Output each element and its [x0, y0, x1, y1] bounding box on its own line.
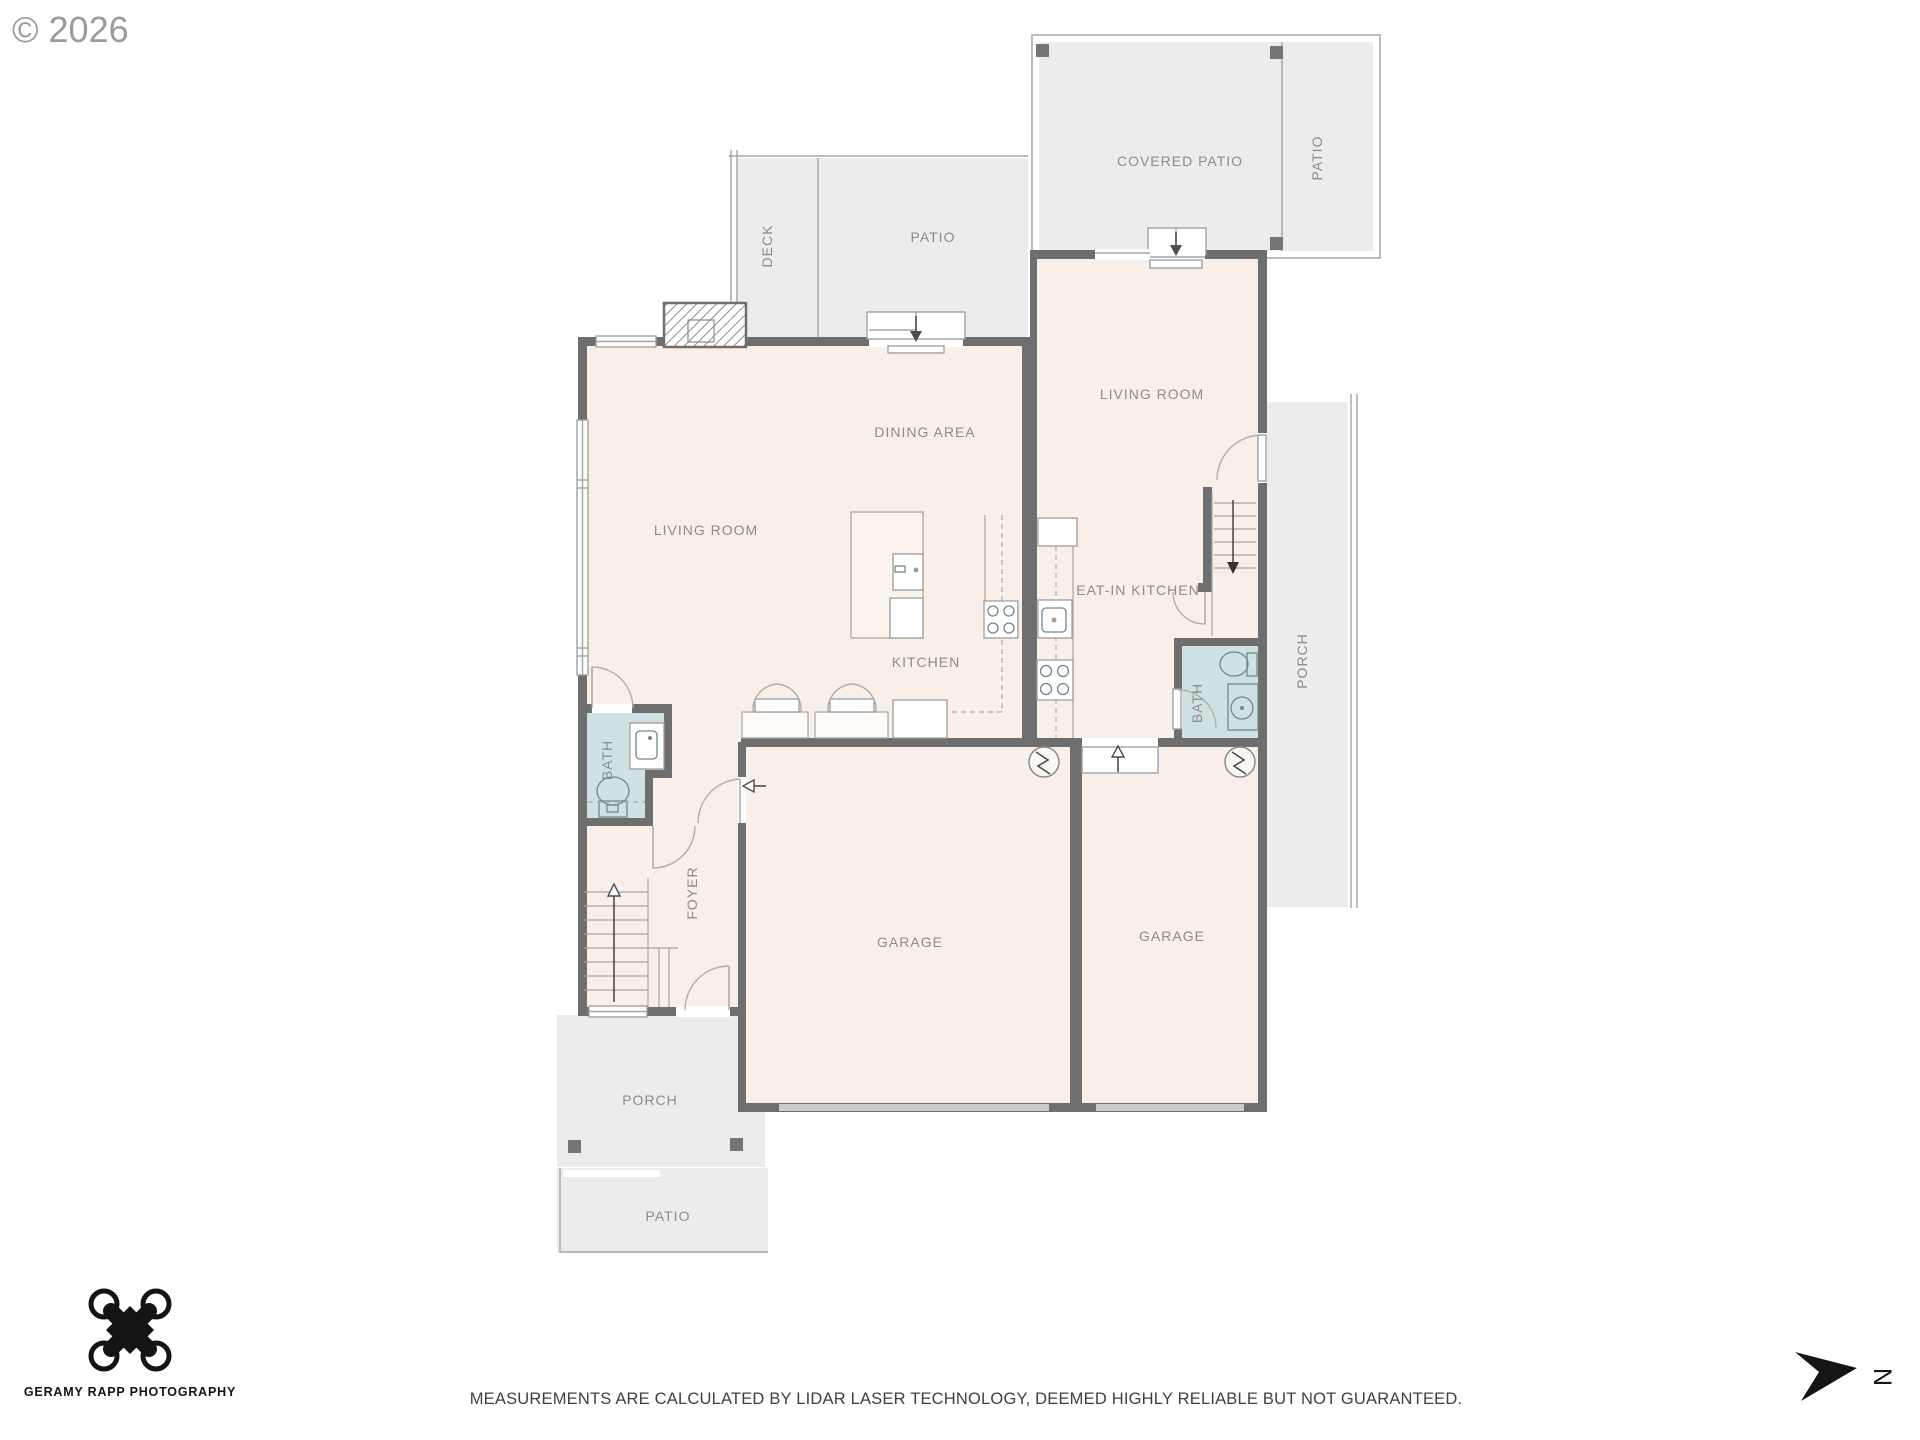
floor-plan-canvas: COVERED PATIO PATIO DECK PATIO DINING AR… [0, 0, 1920, 1440]
garage-door [779, 1104, 1049, 1111]
garage-doors [779, 1104, 1244, 1111]
window [577, 420, 588, 675]
photographer-logo [91, 1291, 169, 1369]
stove [1037, 660, 1073, 700]
garage-door [1096, 1104, 1244, 1111]
room-label-bath-left: BATH [599, 740, 615, 780]
room-label-patio-upper-right: PATIO [1309, 136, 1325, 181]
patio-post [1270, 46, 1283, 59]
room-label-kitchen: KITCHEN [892, 654, 960, 670]
north-arrow-icon [1795, 1352, 1857, 1401]
patio-front-step [563, 1170, 660, 1177]
patio-post [1036, 44, 1049, 57]
room-label-patio-upper: PATIO [911, 229, 956, 245]
stove [984, 601, 1018, 638]
room-label-eat-in-kitchen: EAT-IN KITCHEN [1076, 582, 1199, 598]
porch-post [730, 1138, 743, 1151]
porch-post [568, 1140, 581, 1153]
copyright-watermark: © 2026 [12, 9, 129, 50]
fireplace [664, 303, 746, 347]
disclaimer-text: MEASUREMENTS ARE CALCULATED BY LIDAR LAS… [470, 1390, 1463, 1408]
room-label-garage-left: GARAGE [877, 934, 943, 950]
deck-patio-floor [737, 158, 1028, 338]
brand-name: GERAMY RAPP PHOTOGRAPHY [24, 1385, 236, 1399]
room-label-living-room-left: LIVING ROOM [654, 522, 758, 538]
room-label-living-room-right: LIVING ROOM [1100, 386, 1204, 402]
room-label-porch-right: PORCH [1294, 633, 1310, 689]
dishwasher [890, 598, 923, 638]
door-garage-right [1082, 738, 1158, 773]
room-label-dining-area: DINING AREA [874, 424, 975, 440]
floor-plan-page: COVERED PATIO PATIO DECK PATIO DINING AR… [0, 0, 1920, 1440]
room-label-foyer: FOYER [684, 866, 700, 919]
north-label: N [1868, 1368, 1896, 1386]
sliding-door-dining [867, 312, 965, 353]
patio-post [1270, 237, 1283, 250]
room-label-patio-front: PATIO [646, 1208, 691, 1224]
room-label-porch-front: PORCH [622, 1092, 678, 1108]
interior-floors [582, 254, 1262, 1107]
window [596, 336, 656, 347]
north-arrow: N [1795, 1352, 1896, 1401]
room-label-deck: DECK [759, 225, 775, 268]
window [589, 1006, 647, 1017]
room-label-garage-right: GARAGE [1139, 928, 1205, 944]
refrigerator [893, 700, 947, 738]
room-label-covered-patio: COVERED PATIO [1117, 153, 1243, 169]
refrigerator [1038, 518, 1077, 546]
room-label-bath-right: BATH [1189, 683, 1205, 723]
vanity [630, 723, 664, 769]
